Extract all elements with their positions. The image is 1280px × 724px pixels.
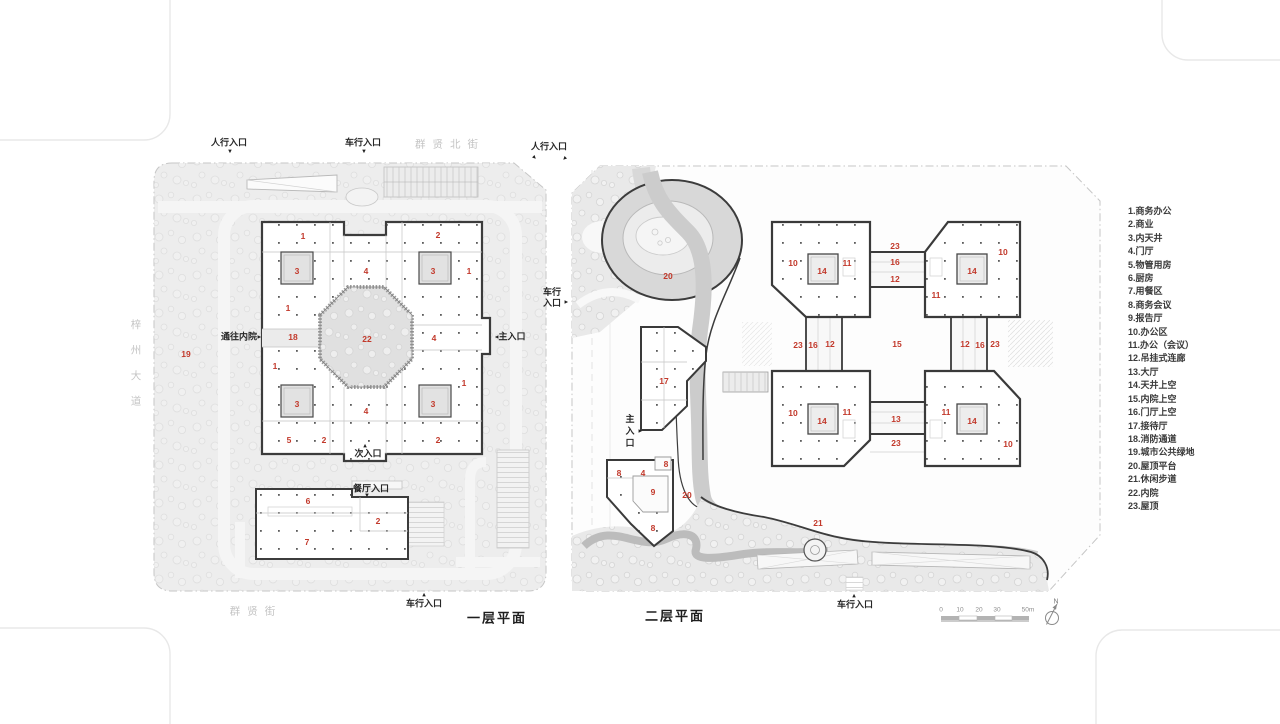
legend-item: 15.内院上空: [1128, 393, 1278, 406]
southeast-parking: [497, 450, 529, 548]
legend-item: 3.内天井: [1128, 232, 1278, 245]
west-paving-hatch: [742, 322, 772, 366]
legend-item: 4.门厅: [1128, 245, 1278, 258]
north-label: N: [1053, 599, 1058, 606]
second-floor-caption: 二层平面: [645, 606, 705, 625]
site-plan-drawing: [0, 0, 1280, 724]
first-floor-main-building: [262, 222, 490, 461]
legend-item: 9.报告厅: [1128, 312, 1278, 325]
legend-item: 5.物管用房: [1128, 259, 1278, 272]
legend-item: 8.商务会议: [1128, 299, 1278, 312]
legend-item: 16.门厅上空: [1128, 406, 1278, 419]
architectural-plan-canvas: 1912343111822411343522627群贤北街梓州大道群贤街人行入口…: [0, 0, 1280, 724]
central-octagon-courtyard: [320, 287, 412, 387]
legend-item: 20.屋顶平台: [1128, 460, 1278, 473]
legend-item: 19.城市公共绿地: [1128, 446, 1278, 459]
legend-item: 22.内院: [1128, 487, 1278, 500]
legend-item: 21.休闲步道: [1128, 473, 1278, 486]
legend-item: 12.吊挂式连廊: [1128, 352, 1278, 365]
first-floor-site: [154, 163, 546, 591]
legend-item: 23.屋顶: [1128, 500, 1278, 513]
scale-bar: [941, 616, 1029, 621]
legend: 1.商务办公 2.商业 3.内天井 4.门厅 5.物管用房 6.厨房 7.用餐区…: [1128, 205, 1278, 513]
fire-passage-strip: [262, 329, 320, 347]
legend-item: 1.商务办公: [1128, 205, 1278, 218]
legend-item: 14.天井上空: [1128, 379, 1278, 392]
legend-item: 18.消防通道: [1128, 433, 1278, 446]
east-paving-hatch: [1008, 320, 1053, 367]
north-arrow-icon: [1046, 604, 1059, 625]
legend-item: 10.办公区: [1128, 326, 1278, 339]
first-floor-caption: 一层平面: [467, 608, 527, 627]
legend-item: 7.用餐区: [1128, 285, 1278, 298]
legend-item: 2.商业: [1128, 218, 1278, 231]
trellis-bridge: [723, 372, 768, 392]
legend-item: 6.厨房: [1128, 272, 1278, 285]
legend-item: 11.办公（会议）: [1128, 339, 1278, 352]
legend-item: 17.接待厅: [1128, 420, 1278, 433]
second-floor-site: [572, 166, 1100, 591]
legend-item: 13.大厅: [1128, 366, 1278, 379]
